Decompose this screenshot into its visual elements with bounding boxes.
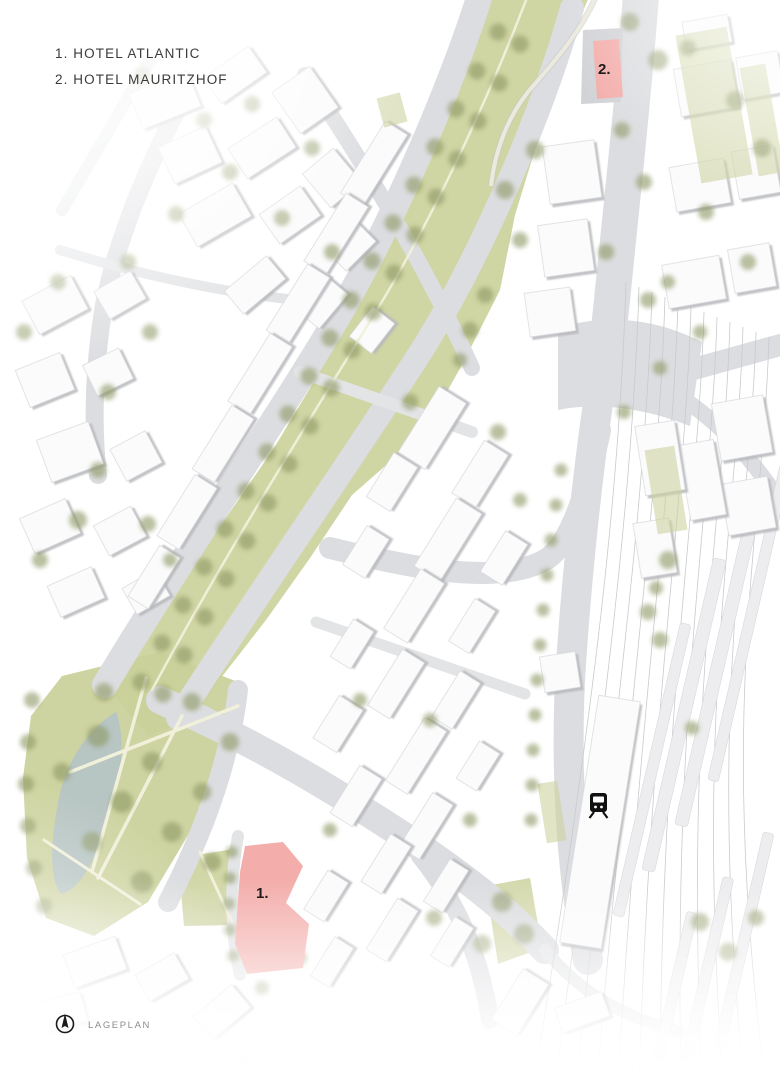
tree (100, 384, 116, 400)
tree (659, 551, 677, 569)
tree (239, 533, 256, 550)
tree (550, 499, 563, 512)
plan-caption: LAGEPLAN (88, 1020, 151, 1031)
tree (353, 693, 367, 707)
tree (531, 674, 544, 687)
tree (183, 693, 201, 711)
tree (496, 181, 514, 199)
tree (740, 254, 756, 270)
tree (490, 424, 506, 440)
tree (423, 713, 437, 727)
marker-label-hotel-mauritzhof: 2. (598, 61, 611, 78)
tree (448, 101, 465, 118)
building (711, 395, 772, 461)
tree (529, 709, 542, 722)
tree (217, 521, 234, 538)
tree (527, 744, 540, 757)
tree (512, 36, 529, 53)
tree (617, 405, 631, 419)
tree (154, 635, 171, 652)
tree (693, 325, 707, 339)
tree (685, 721, 699, 735)
tree (449, 151, 466, 168)
tree (555, 464, 568, 477)
tree (24, 692, 40, 708)
tree (491, 75, 508, 92)
tree (652, 632, 668, 648)
marker-label-hotel-atlantic: 1. (256, 885, 269, 902)
tree (477, 287, 493, 303)
tree (95, 683, 113, 701)
tree (462, 322, 478, 338)
tree (281, 456, 298, 473)
tree (197, 609, 214, 626)
tree (53, 763, 71, 781)
tree (221, 733, 239, 751)
tree (133, 674, 150, 691)
tree (218, 571, 235, 588)
building (539, 651, 580, 692)
tree (90, 462, 106, 478)
tree (260, 495, 277, 512)
tree (140, 516, 156, 532)
tree (537, 604, 550, 617)
tree (402, 394, 418, 410)
site-plan-page: 1. 2. 1. HOTEL ATLANTIC 2. HOTEL MAURITZ… (0, 0, 780, 1079)
legend-item-hotel-mauritzhof: 2. HOTEL MAURITZHOF (55, 72, 228, 87)
tree (512, 232, 528, 248)
tree (238, 483, 255, 500)
tree (302, 418, 319, 435)
tree (32, 552, 48, 568)
tree (20, 734, 36, 750)
tree (176, 647, 193, 664)
tree (196, 559, 213, 576)
tree (661, 275, 675, 289)
tree (525, 814, 538, 827)
tree (598, 244, 614, 260)
tree (698, 204, 714, 220)
tree (490, 24, 507, 41)
tree (526, 141, 544, 159)
tree (69, 511, 87, 529)
tree (280, 406, 297, 423)
tree (470, 113, 487, 130)
legend-item-hotel-atlantic: 1. HOTEL ATLANTIC (55, 46, 200, 61)
building (524, 287, 576, 337)
tree (175, 597, 192, 614)
tree (259, 444, 276, 461)
tree (649, 581, 663, 595)
tree (653, 361, 667, 375)
tree (323, 380, 340, 397)
tree (545, 534, 558, 547)
tree (469, 63, 486, 80)
tree (323, 823, 337, 837)
building (538, 219, 595, 277)
tree (541, 569, 554, 582)
tree (640, 292, 656, 308)
tree (87, 725, 109, 747)
tree (453, 353, 467, 367)
site-plan-map: 1. 2. 1. HOTEL ATLANTIC 2. HOTEL MAURITZ… (0, 0, 780, 1079)
tree (427, 139, 444, 156)
tree (513, 493, 527, 507)
tree (142, 752, 162, 772)
tree (526, 779, 539, 792)
tree (463, 813, 477, 827)
tree (163, 553, 177, 567)
tree (155, 686, 172, 703)
building (720, 476, 776, 536)
tree (640, 604, 656, 620)
tree (428, 189, 445, 206)
tree (534, 639, 547, 652)
top-right-fade (560, 0, 780, 200)
bottom-left-fade (0, 780, 260, 1079)
